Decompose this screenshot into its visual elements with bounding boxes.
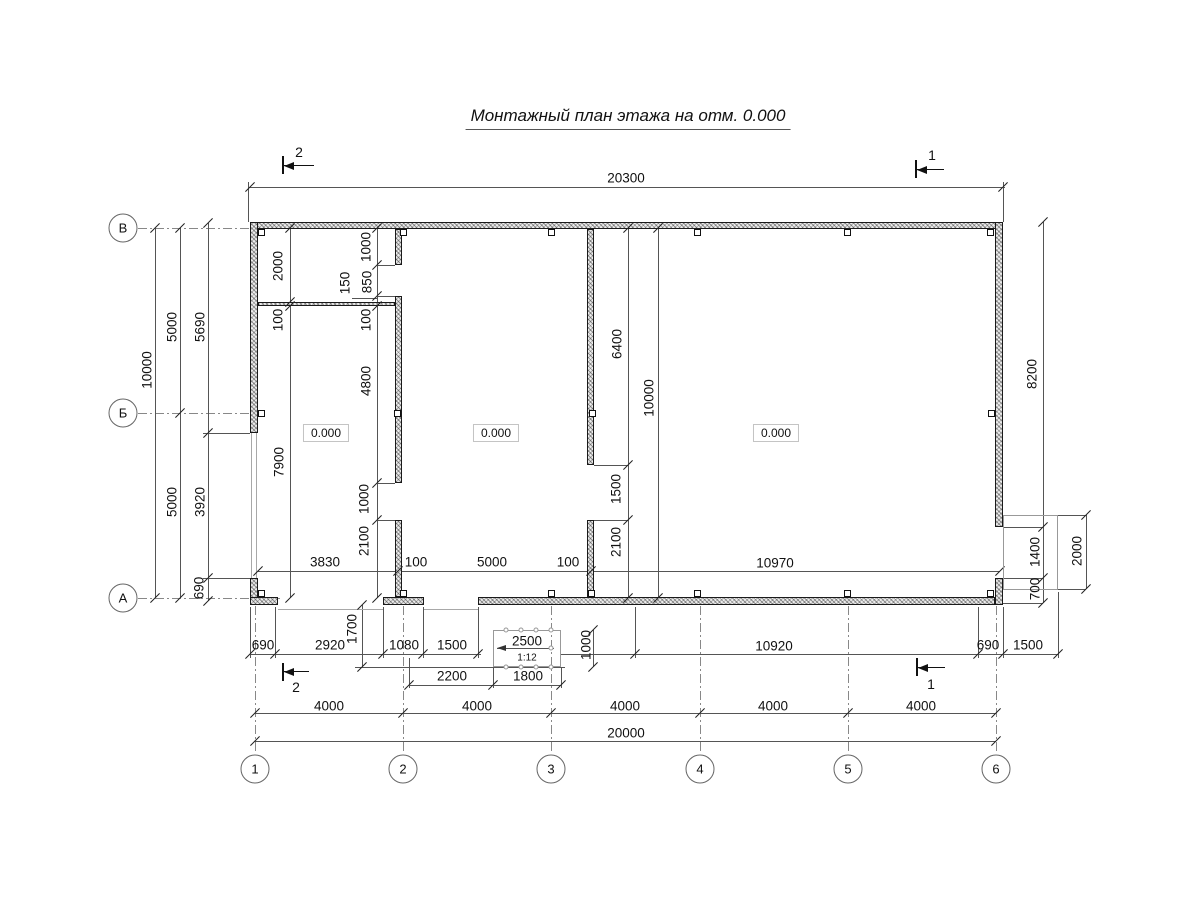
column-mark	[258, 229, 265, 236]
dimension-label: 6400	[610, 329, 625, 359]
dimension-line	[1058, 515, 1086, 516]
dimension-line	[383, 607, 384, 658]
dimension-line	[377, 265, 395, 266]
dimension-line	[1003, 607, 1004, 658]
dimension-label: 7900	[272, 447, 287, 477]
dimension-label: 100	[359, 309, 374, 332]
column-mark	[400, 229, 407, 236]
window-glazing-line	[256, 433, 257, 578]
dimension-label: 100	[557, 555, 580, 570]
floor-plan-drawing: Монтажный план этажа на отм. 0.000 20300…	[0, 0, 1200, 900]
dimension-label: 1000	[359, 232, 374, 262]
elevation-mark: 0.000	[753, 424, 799, 442]
ramp-arrow-head-icon	[497, 645, 506, 651]
column-mark	[987, 590, 994, 597]
section-arrow-icon	[917, 166, 927, 174]
column-mark	[258, 590, 265, 597]
dimension-label: 850	[360, 271, 375, 294]
dimension-label: 4000	[758, 699, 788, 714]
dimension-line	[423, 607, 424, 658]
dimension-line	[203, 578, 250, 579]
dimension-label: 3920	[193, 487, 208, 517]
axis-bubble-2: 2	[389, 755, 418, 784]
wall-segment	[250, 222, 258, 433]
dimension-line	[478, 607, 479, 658]
dimension-label: 1000	[579, 630, 594, 660]
dimension-line	[250, 654, 481, 655]
column-mark	[400, 590, 407, 597]
section-arrow-icon	[284, 668, 294, 676]
dimension-line	[203, 433, 250, 434]
elevation-mark: 0.000	[303, 424, 349, 442]
dimension-label: 4000	[462, 699, 492, 714]
dimension-label: 690	[252, 638, 275, 653]
dimension-line	[377, 296, 395, 297]
axis-grid-line	[138, 413, 258, 414]
dimension-label: 5000	[165, 487, 180, 517]
dimension-label: 1:12	[517, 653, 536, 664]
dimension-label: 4000	[906, 699, 936, 714]
axis-bubble-6: 6	[982, 755, 1011, 784]
opening-threshold-line	[278, 609, 383, 610]
wall-segment	[995, 222, 1003, 527]
ramp-dot	[549, 628, 554, 633]
dimension-label: 1400	[1028, 537, 1043, 567]
axis-bubble-5: 5	[834, 755, 863, 784]
dimension-label: 3830	[310, 555, 340, 570]
dimension-label: 10000	[642, 379, 657, 417]
dimension-label: 2100	[609, 527, 624, 557]
section-label-1: 1	[927, 676, 935, 692]
dimension-line	[635, 607, 636, 658]
dimension-label: 100	[405, 555, 428, 570]
dimension-line	[594, 465, 628, 466]
dimension-label: 8200	[1025, 359, 1040, 389]
dimension-label: 5000	[165, 312, 180, 342]
wall-segment	[587, 229, 594, 465]
wall-segment	[995, 578, 1003, 605]
dimension-label: 1000	[357, 484, 372, 514]
section-arrow-icon	[284, 162, 294, 170]
dimension-line	[1058, 592, 1059, 658]
dimension-label: 1500	[609, 474, 624, 504]
dimension-label: 1500	[437, 638, 467, 653]
dimension-label: 2000	[1070, 536, 1085, 566]
section-label-1: 1	[928, 147, 936, 163]
dimension-label: 1800	[513, 669, 543, 684]
wall-segment	[395, 296, 402, 483]
column-mark	[987, 229, 994, 236]
dimension-line	[658, 228, 659, 598]
dimension-label: 2920	[315, 638, 345, 653]
dimension-line	[362, 605, 363, 667]
dimension-label: 4000	[314, 699, 344, 714]
dimension-label: 20000	[607, 726, 645, 741]
dimension-line	[377, 520, 395, 521]
axis-bubble-В: В	[109, 214, 138, 243]
ramp-arrow-end-dot	[549, 646, 554, 651]
dimension-label: 690	[192, 577, 207, 600]
wall-segment	[258, 302, 395, 306]
dimension-label: 5690	[193, 312, 208, 342]
dimension-line	[1058, 589, 1086, 590]
opening-threshold-line	[424, 609, 478, 610]
ramp-dot	[504, 628, 509, 633]
column-mark	[988, 410, 995, 417]
column-mark	[694, 229, 701, 236]
ramp-dot	[519, 628, 524, 633]
column-mark	[844, 590, 851, 597]
dimension-label: 2100	[357, 526, 372, 556]
dimension-line	[1086, 515, 1087, 589]
column-mark	[258, 410, 265, 417]
dimension-label: 10920	[755, 639, 793, 654]
dimension-label: 700	[1028, 578, 1043, 601]
axis-grid-line	[403, 606, 404, 753]
dimension-line	[1003, 182, 1004, 222]
dimension-label: 150	[338, 272, 353, 295]
dimension-line	[628, 228, 629, 598]
dimension-line	[377, 228, 378, 598]
dimension-line	[594, 520, 628, 521]
dimension-line	[275, 607, 276, 658]
dimension-line	[208, 223, 209, 601]
axis-grid-line	[255, 606, 256, 753]
wall-segment	[395, 520, 402, 597]
dimension-line	[255, 741, 996, 742]
dimension-label: 4800	[359, 366, 374, 396]
ramp-dot	[504, 665, 509, 670]
dimension-line	[1003, 603, 1043, 604]
dimension-label: 1700	[345, 614, 360, 644]
wall-segment	[383, 597, 424, 605]
window-glazing-line	[251, 433, 252, 578]
dimension-label: 2200	[437, 669, 467, 684]
column-mark	[548, 590, 555, 597]
dimension-line	[409, 685, 561, 686]
dimension-label: 100	[271, 309, 286, 332]
wall-segment	[250, 597, 278, 605]
column-mark	[844, 229, 851, 236]
elevation-mark: 0.000	[473, 424, 519, 442]
dimension-label: 2500	[512, 634, 542, 649]
dimension-label: 20300	[607, 171, 645, 186]
column-mark	[394, 410, 401, 417]
dimension-line	[258, 571, 1000, 572]
dimension-line	[290, 228, 291, 598]
wall-segment	[587, 520, 594, 597]
dimension-label: 690	[977, 638, 1000, 653]
ramp-dot	[549, 665, 554, 670]
section-label-2: 2	[292, 679, 300, 695]
axis-bubble-А: А	[109, 584, 138, 613]
dimension-label: 1500	[1013, 638, 1043, 653]
axis-grid-line	[848, 606, 849, 753]
dimension-label: 10000	[140, 351, 155, 389]
column-mark	[589, 410, 596, 417]
dimension-label: 4000	[610, 699, 640, 714]
drawing-title: Монтажный план этажа на отм. 0.000	[466, 106, 791, 130]
section-label-2: 2	[295, 144, 303, 160]
dimension-line	[155, 228, 156, 598]
section-arrow-icon	[918, 664, 928, 672]
dimension-line	[377, 483, 395, 484]
column-mark	[548, 229, 555, 236]
ramp-dot	[534, 628, 539, 633]
dimension-line	[248, 187, 1005, 188]
dimension-label: 1080	[389, 638, 419, 653]
dimension-label: 2000	[271, 251, 286, 281]
axis-bubble-1: 1	[241, 755, 270, 784]
column-mark	[694, 590, 701, 597]
wall-segment	[478, 597, 995, 605]
axis-grid-line	[700, 606, 701, 753]
axis-bubble-Б: Б	[109, 399, 138, 428]
axis-bubble-3: 3	[537, 755, 566, 784]
axis-grid-line	[996, 606, 997, 753]
dimension-label: 10970	[756, 556, 794, 571]
column-mark	[588, 590, 595, 597]
axis-bubble-4: 4	[686, 755, 715, 784]
dimension-label: 5000	[477, 555, 507, 570]
